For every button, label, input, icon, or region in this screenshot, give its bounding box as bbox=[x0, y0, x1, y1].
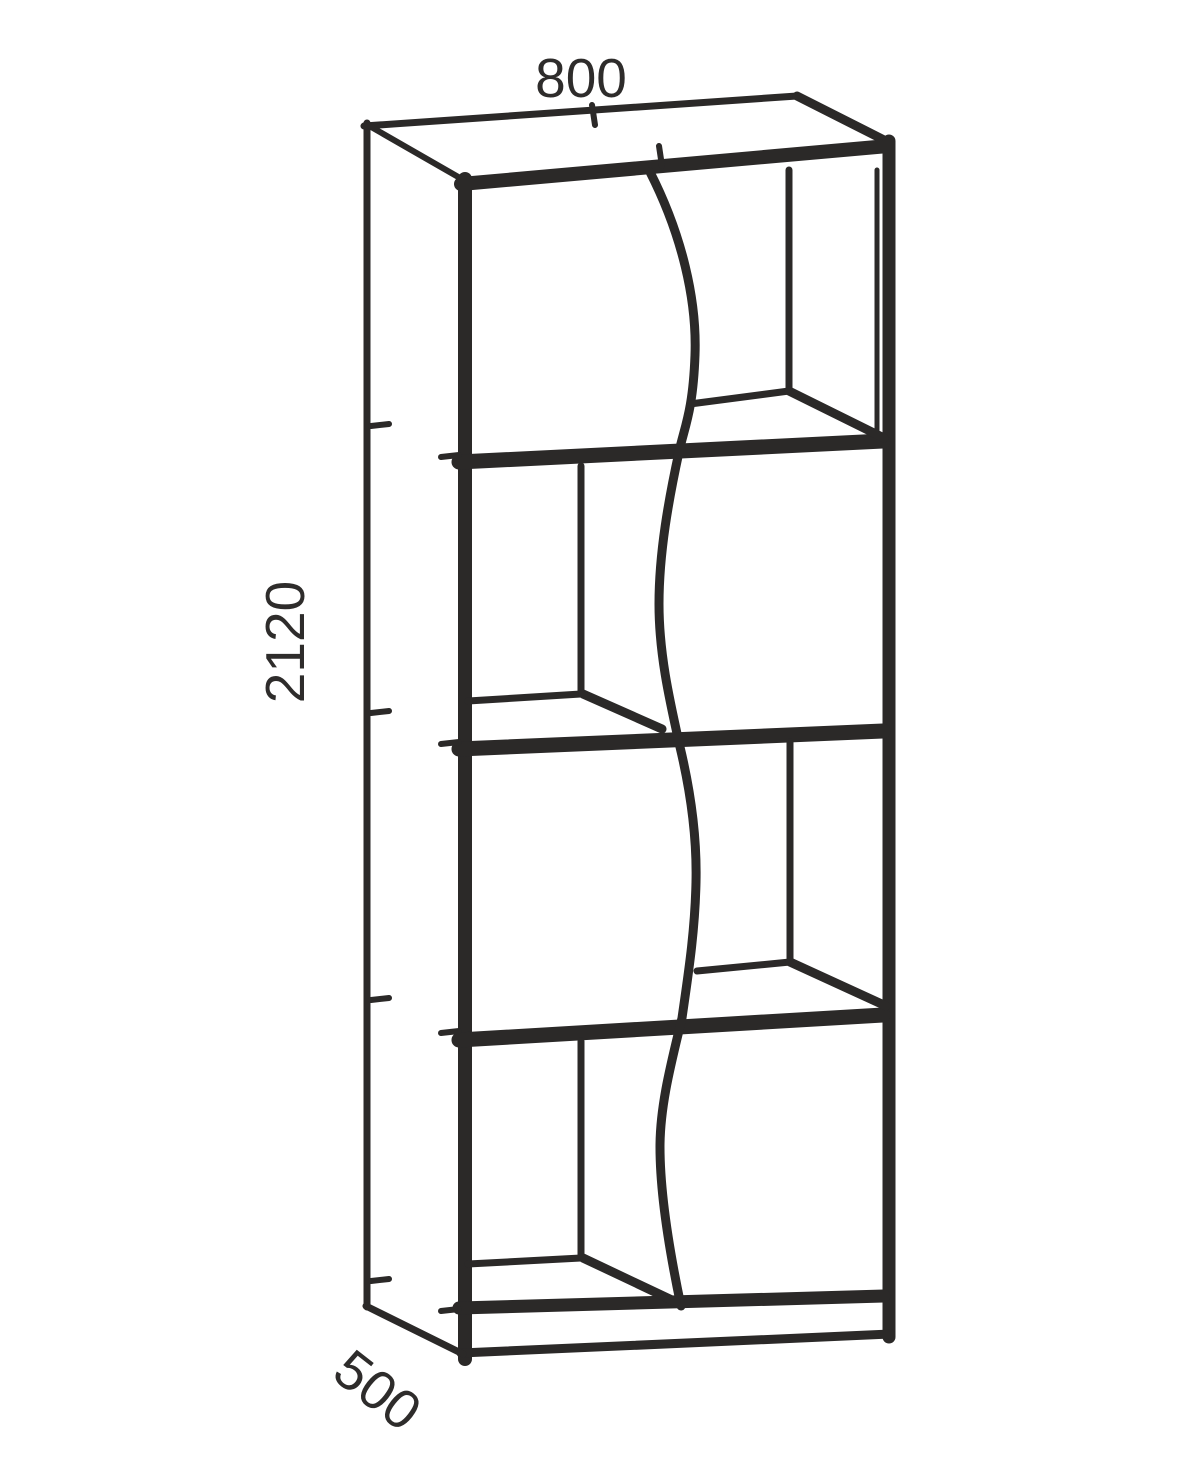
shelf-2-front-edge bbox=[459, 731, 883, 749]
tick-back-bottom bbox=[371, 1279, 389, 1281]
dimension-label-width: 800 bbox=[535, 47, 627, 109]
shelf-3-front-edge bbox=[459, 1015, 883, 1040]
cell-3-interior bbox=[697, 742, 886, 1006]
shelf-1-front-edge bbox=[459, 441, 883, 462]
cell-2-interior bbox=[468, 466, 662, 729]
cell-4-interior bbox=[468, 1041, 676, 1302]
shelf-unit-technical-drawing: 800 2120 500 bbox=[0, 0, 1200, 1459]
drawing-canvas: 800 2120 500 bbox=[0, 0, 1200, 1459]
cell-3-shelf-depth-edge bbox=[790, 962, 886, 1006]
cell-4-shelf-back-edge bbox=[468, 1258, 581, 1264]
cell-2-shelf-depth-edge bbox=[583, 694, 662, 729]
tick-top-front-divider bbox=[659, 146, 662, 166]
tick-front-bottom bbox=[441, 1309, 459, 1311]
base-front-edge bbox=[461, 1334, 891, 1353]
tick-front-shelf-3 bbox=[441, 1031, 459, 1033]
cell-2-shelf-back-edge bbox=[468, 694, 581, 701]
tick-back-shelf-1 bbox=[371, 424, 389, 426]
dimension-label-height: 2120 bbox=[254, 581, 316, 703]
left-panel-bottom-edge bbox=[366, 1306, 463, 1354]
tick-back-shelf-2 bbox=[371, 711, 389, 713]
tick-back-shelf-3 bbox=[371, 998, 389, 1000]
dimension-label-depth: 500 bbox=[322, 1337, 432, 1442]
tick-front-shelf-2 bbox=[441, 742, 459, 744]
tick-front-shelf-1 bbox=[441, 455, 459, 457]
cell-4-shelf-depth-edge bbox=[583, 1258, 676, 1302]
cell-1-shelf-depth-edge bbox=[789, 391, 884, 438]
cell-1-interior bbox=[690, 170, 884, 438]
top-panel-front-edge bbox=[461, 146, 888, 184]
top-left-depth-edge bbox=[366, 124, 467, 182]
shelves bbox=[459, 441, 883, 1040]
top-right-depth-edge bbox=[797, 96, 890, 143]
cell-1-shelf-back-edge bbox=[690, 391, 789, 404]
cell-3-shelf-back-edge bbox=[697, 962, 790, 971]
